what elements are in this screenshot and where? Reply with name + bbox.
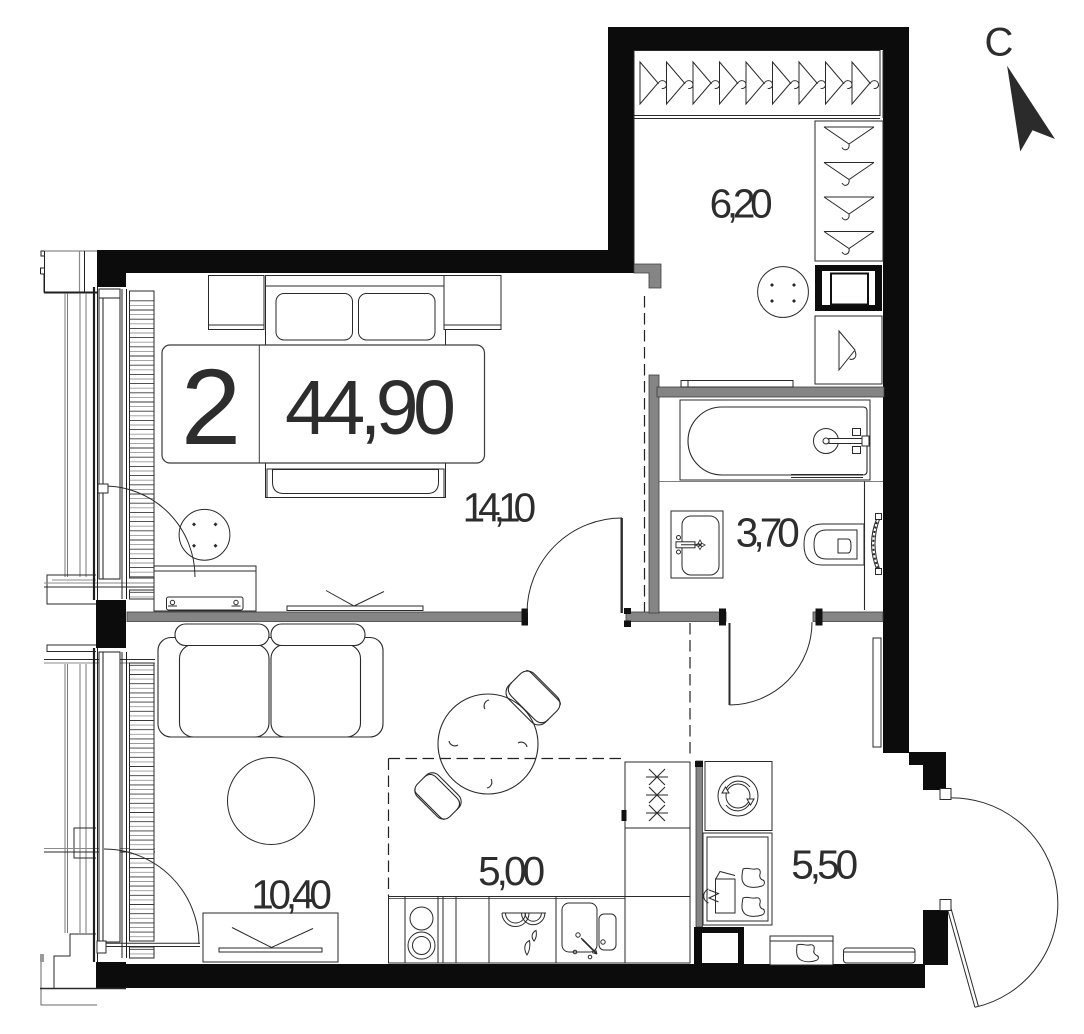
svg-text:44,90: 44,90	[285, 365, 456, 451]
svg-text:2: 2	[181, 346, 241, 467]
svg-text:3,70: 3,70	[736, 510, 800, 556]
svg-text:6,20: 6,20	[710, 181, 773, 227]
svg-text:14,10: 14,10	[463, 484, 537, 530]
svg-text:C: C	[985, 21, 1014, 65]
svg-text:10,40: 10,40	[251, 872, 332, 918]
svg-text:5,00: 5,00	[478, 848, 545, 894]
svg-text:5,50: 5,50	[791, 842, 858, 888]
